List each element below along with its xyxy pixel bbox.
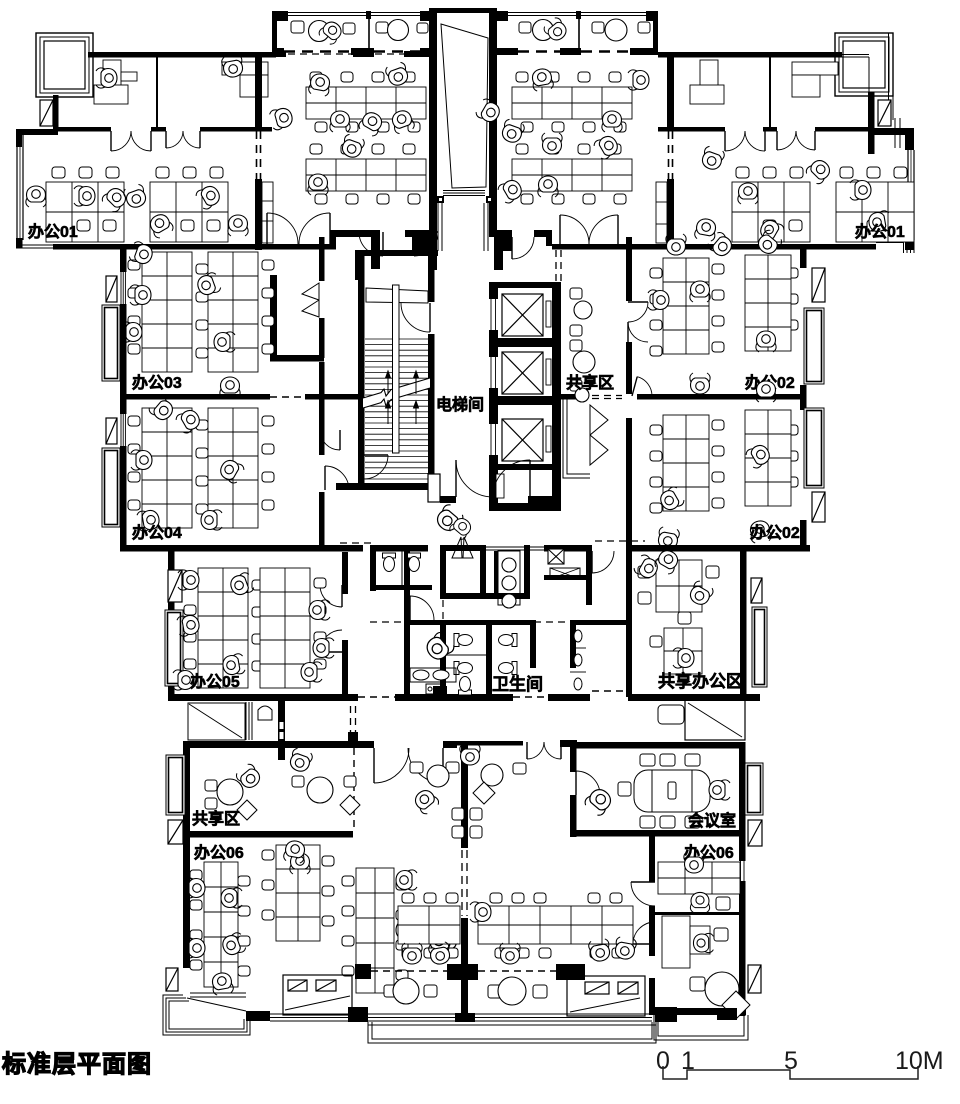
svg-text:办公01: 办公01 [855, 222, 905, 241]
svg-text:标准层平面图: 标准层平面图 [2, 1051, 152, 1078]
svg-text:10M: 10M [895, 1047, 944, 1075]
svg-text:办公01: 办公01 [28, 222, 78, 241]
svg-text:办公02: 办公02 [750, 523, 800, 542]
svg-text:共享区: 共享区 [192, 809, 240, 828]
svg-text:办公06: 办公06 [194, 843, 244, 862]
svg-text:会议室: 会议室 [688, 811, 736, 830]
svg-text:办公04: 办公04 [132, 523, 182, 542]
svg-text:共享办公区: 共享办公区 [658, 671, 743, 691]
svg-text:电梯间: 电梯间 [436, 395, 484, 414]
svg-text:卫生间: 卫生间 [492, 674, 543, 694]
svg-text:办公03: 办公03 [132, 373, 182, 392]
svg-text:共享区: 共享区 [566, 373, 614, 392]
svg-text:5: 5 [784, 1047, 798, 1075]
svg-text:办公05: 办公05 [190, 672, 240, 691]
svg-text:1: 1 [681, 1047, 695, 1075]
